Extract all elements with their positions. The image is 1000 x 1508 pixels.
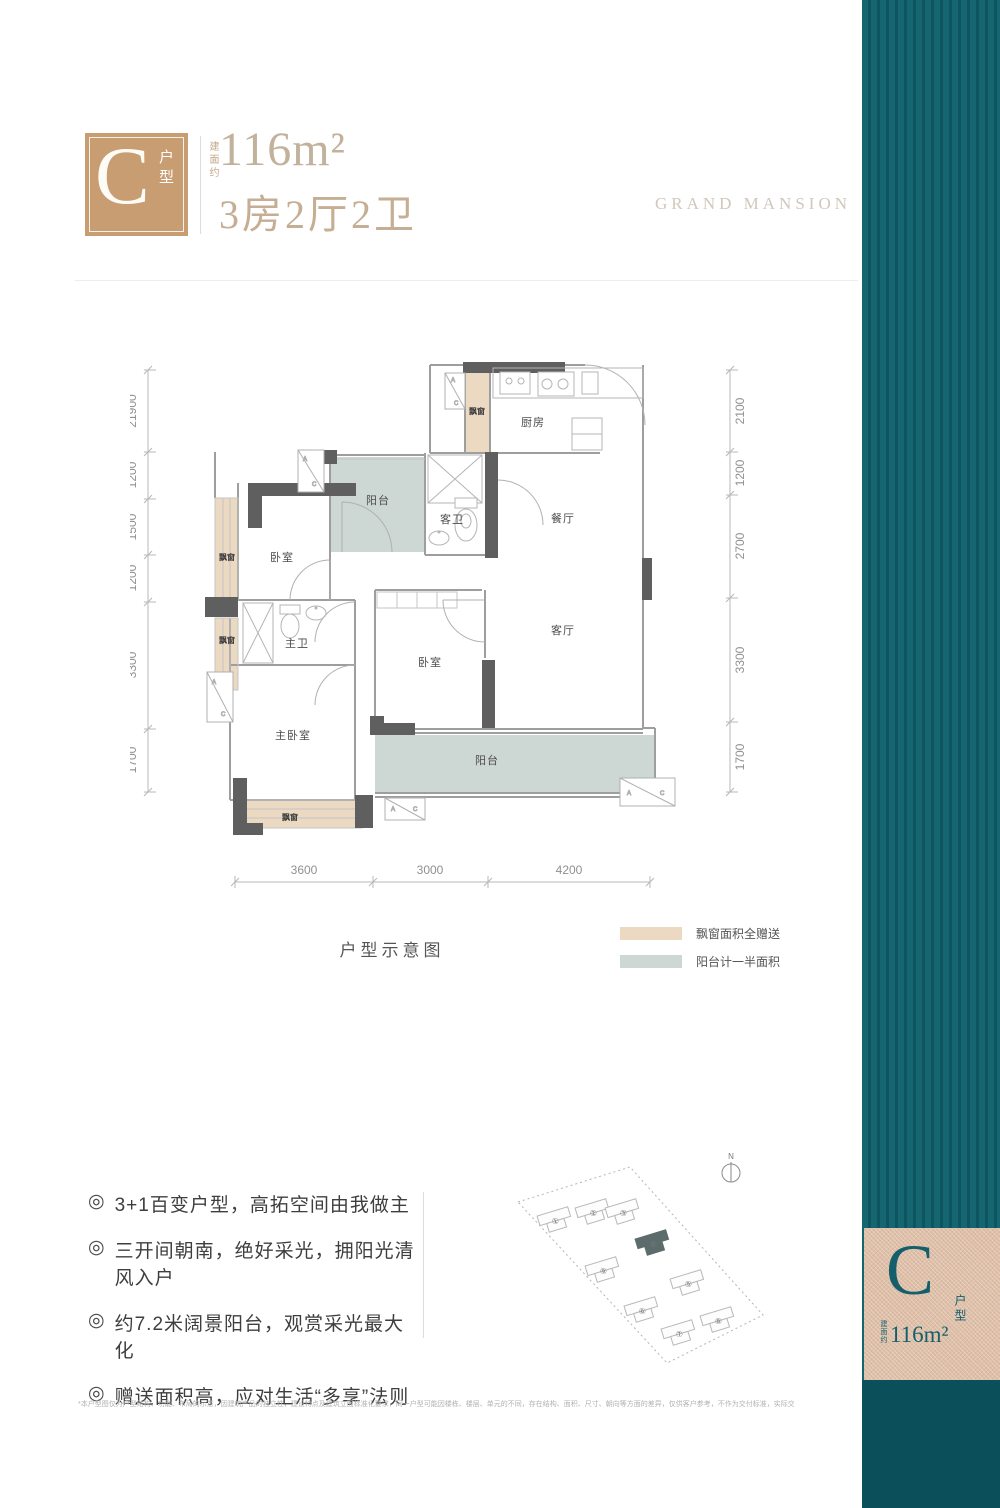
room-label-bay: 飘窗 xyxy=(219,552,235,562)
banner-type-suffix: 户型 xyxy=(952,1294,969,1324)
feature-text: 3+1百变户型，高拓空间由我做主 xyxy=(115,1190,410,1217)
legend-row-bay: 飘窗面积全赠送 xyxy=(620,925,780,942)
plan-caption: 户型示意图 xyxy=(322,936,462,961)
ac-c-label: C xyxy=(413,807,418,813)
dim-right-1: 1200 xyxy=(733,459,747,486)
features-divider xyxy=(423,1192,424,1338)
area-prefix-label: 建面约 xyxy=(205,141,220,180)
room-label-balcony: 阳台 xyxy=(475,753,499,767)
dim-left-4: 3300 xyxy=(130,651,139,678)
disclaimer-text: *本户型图仅为户型结构、功能、布局的示意，因建筑产品的独立性，建设特点及建筑立面… xyxy=(78,1399,794,1409)
site-building-current: ④ xyxy=(635,1230,671,1258)
room-label-guest-bath: 客卫 xyxy=(440,512,464,526)
ac-box: A C xyxy=(620,778,675,806)
room-label-master-bedroom: 主卧室 xyxy=(275,728,311,742)
banner-area: 建面约 116m² xyxy=(878,1320,948,1348)
dim-right-4: 1700 xyxy=(733,743,747,770)
poster-page: C 户型 建面约 116m² 3房2厅2卫 GRAND MANSION xyxy=(0,0,1000,1508)
dim-left-0: 21900 xyxy=(130,394,139,428)
ac-a-label: A xyxy=(212,680,216,686)
feature-text: 三开间朝南，绝好采光，拥阳光清风入户 xyxy=(115,1236,418,1290)
legend-swatch-balcony xyxy=(620,955,682,968)
ac-box: A C xyxy=(445,373,465,409)
header-vertical-divider xyxy=(200,136,201,234)
legend-label-bay: 飘窗面积全赠送 xyxy=(696,925,780,942)
ac-box: A C xyxy=(298,450,324,492)
ac-a-label: A xyxy=(391,807,395,813)
banner-type-letter: C xyxy=(886,1234,934,1306)
dim-bottom-0: 3600 xyxy=(291,863,318,877)
ac-a-label: A xyxy=(627,791,631,797)
dim-left-1: 1200 xyxy=(130,461,139,488)
dim-bottom-2: 4200 xyxy=(556,863,583,877)
master-bath-fixtures xyxy=(243,603,326,663)
site-boundary xyxy=(518,1167,763,1363)
site-building: ③ xyxy=(605,1199,641,1227)
balcony-bottom-area xyxy=(375,735,655,793)
site-building: ⑥ xyxy=(624,1297,660,1325)
type-letter: C xyxy=(95,135,150,217)
feature-list: ◎ 3+1百变户型，高拓空间由我做主 ◎ 三开间朝南，绝好采光，拥阳光清风入户 … xyxy=(88,1190,418,1428)
kitchen-fixtures xyxy=(493,368,643,450)
feature-text: 约7.2米阔景阳台，观赏采光最大化 xyxy=(115,1309,418,1363)
banner-type-badge: C 户型 建面约 116m² xyxy=(864,1228,1000,1380)
north-arrow: N xyxy=(722,1152,740,1182)
type-badge: C 户型 xyxy=(85,133,188,236)
dim-bottom-1: 3000 xyxy=(417,863,444,877)
ac-box: A C xyxy=(207,672,233,722)
site-building: ⑧ xyxy=(700,1307,736,1335)
bullet-icon: ◎ xyxy=(88,1190,106,1213)
ac-a-label: A xyxy=(451,378,455,384)
legend-swatch-bay xyxy=(620,927,682,940)
ac-c-label: C xyxy=(454,401,459,407)
room-label-living: 客厅 xyxy=(551,623,575,637)
site-building: ② xyxy=(575,1199,611,1227)
site-building: ⑦ xyxy=(661,1320,697,1348)
room-label-dining: 餐厅 xyxy=(551,511,575,525)
guest-bath-fixtures xyxy=(428,455,482,545)
layout-text: 3房2厅2卫 xyxy=(219,182,417,240)
room-label-bay: 飘窗 xyxy=(219,635,235,645)
brand-wordmark: GRAND MANSION xyxy=(648,194,858,214)
dim-right-3: 3300 xyxy=(733,646,747,673)
room-label-bedroom: 卧室 xyxy=(418,655,442,669)
site-building: ⑤ xyxy=(670,1270,706,1298)
bullet-icon: ◎ xyxy=(88,1309,106,1332)
room-label-bedroom: 卧室 xyxy=(270,550,294,564)
room-label-master-bath: 主卫 xyxy=(285,637,309,650)
room-label-kitchen: 厨房 xyxy=(521,416,545,429)
bullet-icon: ◎ xyxy=(88,1236,106,1259)
dim-left-5: 1700 xyxy=(130,746,139,773)
feature-item: ◎ 约7.2米阔景阳台，观赏采光最大化 xyxy=(88,1309,418,1363)
side-banner-bottom xyxy=(862,1380,1000,1508)
dim-left-3: 1200 xyxy=(130,564,139,591)
ac-a-label: A xyxy=(303,457,307,463)
dim-right-0: 2100 xyxy=(733,397,747,424)
floorplan-drawing: A C A C A C A C A C xyxy=(130,350,800,930)
ac-c-label: C xyxy=(221,712,226,718)
room-label-balcony: 阳台 xyxy=(366,493,390,507)
banner-area-prefix: 建面约 xyxy=(878,1320,888,1344)
area-value: 116m² xyxy=(219,122,346,177)
room-label-bay: 飘窗 xyxy=(282,812,298,822)
feature-item: ◎ 三开间朝南，绝好采光，拥阳光清风入户 xyxy=(88,1236,418,1290)
room-label-bay: 飘窗 xyxy=(469,406,485,416)
legend-row-balcony: 阳台计一半面积 xyxy=(620,953,780,970)
ac-c-label: C xyxy=(312,482,317,488)
plan-legend: 飘窗面积全赠送 阳台计一半面积 xyxy=(620,925,780,981)
north-label: N xyxy=(728,1152,734,1161)
ac-c-label: C xyxy=(660,791,665,797)
siteplan-drawing: N ① ② ③ ④ ⑨ ⑤ ⑥ xyxy=(505,1150,795,1395)
dim-right-2: 2700 xyxy=(733,532,747,559)
banner-area-value: 116m² xyxy=(890,1322,948,1348)
type-suffix-label: 户型 xyxy=(155,149,176,189)
header-rule xyxy=(75,280,858,281)
site-building: ① xyxy=(537,1207,573,1235)
legend-label-balcony: 阳台计一半面积 xyxy=(696,953,780,970)
feature-item: ◎ 3+1百变户型，高拓空间由我做主 xyxy=(88,1190,418,1217)
ac-box: A C xyxy=(385,798,425,820)
dim-left-2: 1500 xyxy=(130,513,139,540)
bay-window-left1 xyxy=(215,498,238,600)
